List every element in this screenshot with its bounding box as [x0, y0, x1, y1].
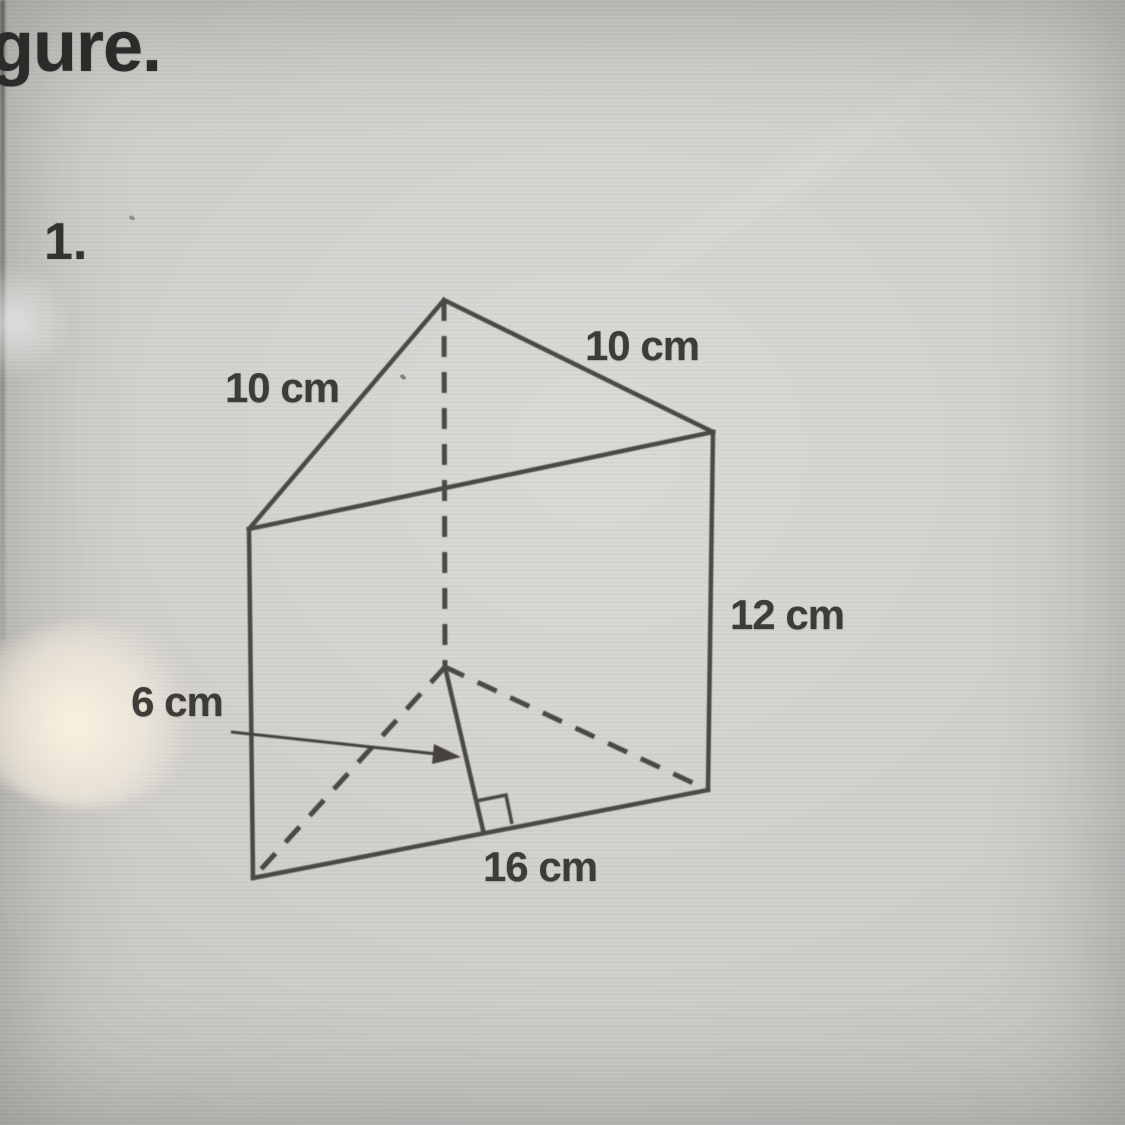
worksheet-photo: gure. 1. 10 cm 10 cm 12 cm 6 cm 16 cm — [0, 0, 1125, 1125]
prism-edge — [249, 529, 253, 878]
prism-diagram — [0, 0, 1125, 1125]
label-top-right-edge: 10 cm — [585, 322, 699, 370]
dimension-arrow-line — [231, 732, 437, 754]
prism-edge — [708, 432, 713, 790]
triangle-height-line — [445, 667, 483, 830]
prism-hidden-edge — [445, 667, 708, 790]
label-top-left-edge: 10 cm — [225, 364, 339, 412]
label-triangle-height: 6 cm — [131, 678, 223, 726]
dimension-arrow-head — [432, 744, 461, 764]
label-base-edge: 16 cm — [483, 843, 597, 891]
prism-hidden-edge — [444, 300, 445, 667]
label-prism-height: 12 cm — [730, 591, 844, 639]
